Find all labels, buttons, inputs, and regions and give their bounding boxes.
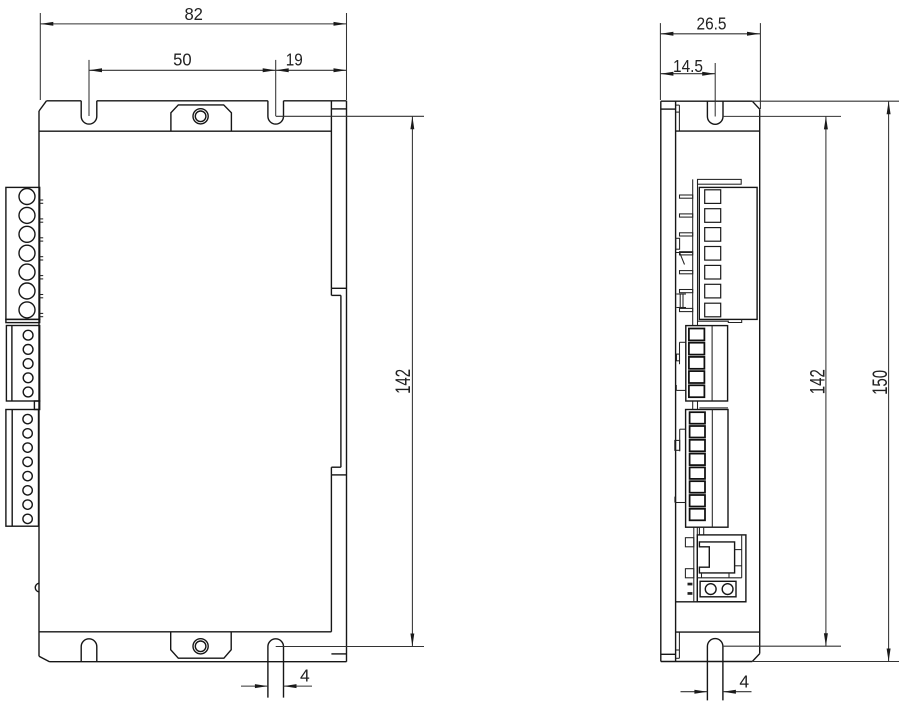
svg-text:50: 50 [173,49,192,69]
svg-text:142: 142 [392,369,415,394]
svg-text:82: 82 [184,4,203,24]
svg-text:4: 4 [300,666,310,686]
svg-text:26.5: 26.5 [697,14,727,34]
svg-text:150: 150 [869,370,892,395]
svg-text:14.5: 14.5 [673,56,703,76]
svg-text:19: 19 [286,49,303,69]
svg-text:4: 4 [739,672,749,692]
svg-text:142: 142 [806,369,829,394]
